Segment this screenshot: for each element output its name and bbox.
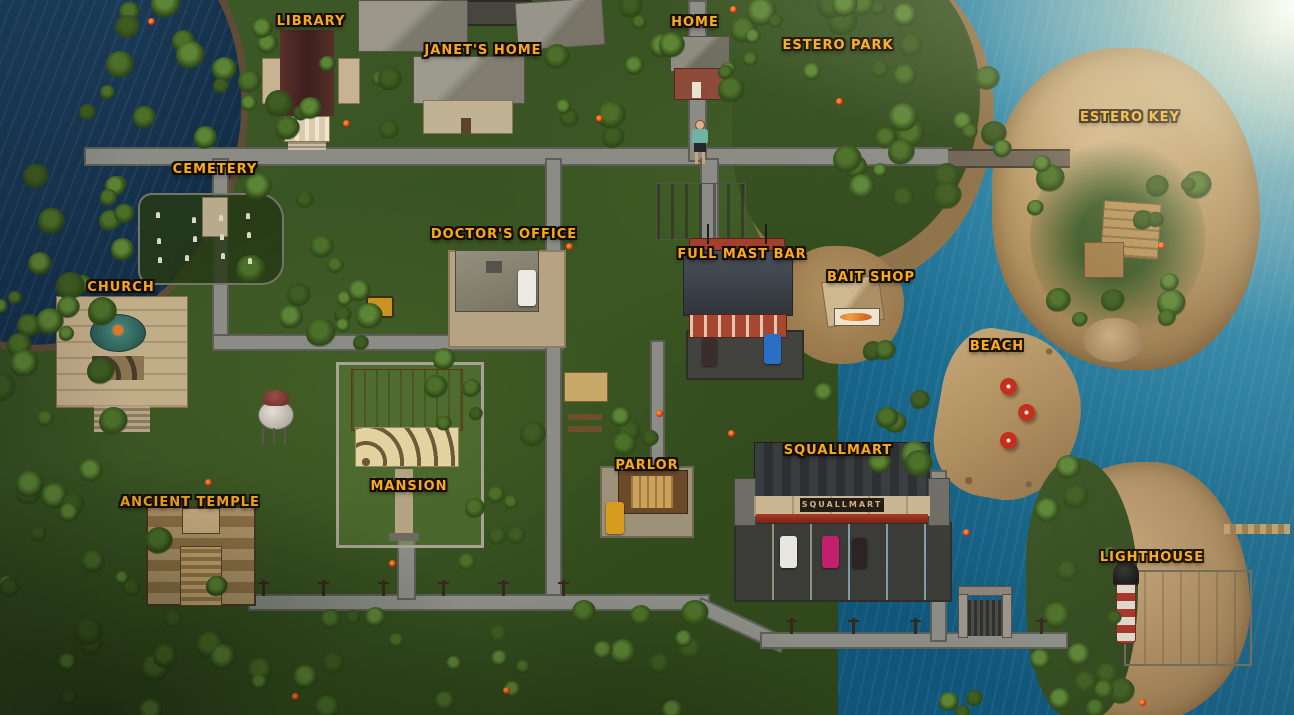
palm-tree [322,652,345,675]
squallmart-dark-car [852,538,867,568]
flower [343,120,350,127]
palm-tree [593,641,613,661]
palm-tree [0,373,16,403]
player-marker [686,120,714,168]
palm-tree [115,571,129,585]
flower [292,693,299,700]
beach-umbrella [1018,404,1035,421]
water-tower [254,388,298,446]
palm-tree [556,99,572,115]
palm-tree [279,305,304,330]
bar-mast-left [707,224,709,244]
palm-tree [617,420,641,444]
flower [389,560,396,567]
warehouse-building [656,183,746,240]
utility-pole [1040,618,1043,634]
player-shirt [692,129,708,144]
bar-mast-right [765,224,767,244]
parlor-yellow-van [606,502,624,534]
palm-tree [296,191,314,209]
utility-pole [502,580,505,596]
temple-stairs [180,546,222,606]
palm-tree [560,109,579,128]
water-tower-dome [263,390,289,406]
home-building[interactable] [670,36,730,102]
squallmart-storefront-sign: SQUALLMART [800,498,884,512]
palm-tree [310,235,334,259]
map-label-home[interactable]: HOME [671,16,719,29]
map-label-ancient-temple[interactable]: ANCIENT TEMPLE [120,496,260,509]
janets-home-building[interactable] [413,56,525,136]
bait-shop-fish-logo [840,313,872,321]
gravestone [248,258,252,264]
palm-tree [389,633,404,648]
palm-tree [80,633,103,656]
library-portico [284,116,330,142]
palm-tree [520,421,547,448]
palm-tree [58,653,77,672]
palm-tree [327,257,343,273]
gravestone [247,232,251,238]
palm-tree [251,674,268,691]
gate-iron-doors [968,600,1002,636]
palm-tree [210,644,236,670]
utility-pole [322,580,325,596]
palm-tree [435,691,454,710]
bait-shop-building[interactable] [824,278,886,348]
church-body [56,296,188,408]
squallmart-pink-car [822,536,839,568]
library-right-tower [338,58,360,104]
palm-tree [602,126,625,149]
church-building[interactable] [56,294,190,434]
map-label-parlor[interactable]: PARLOR [615,459,678,472]
library-steps [288,142,326,150]
market-stand [560,370,614,440]
gravestone [157,238,161,244]
palm-tree [287,283,311,307]
beach-umbrella [1000,378,1017,395]
palm-tree [610,639,636,665]
palm-tree [678,637,702,661]
water-tower-legs [262,428,290,444]
parlor-building[interactable] [618,470,688,514]
palm-tree [346,610,360,624]
palm-tree [504,495,519,510]
lighthouse-tower [1108,562,1144,654]
flower [205,479,212,486]
sandbar-islet [1083,318,1145,362]
parlor-roof-center [631,476,673,508]
beach-umbrella [1000,432,1017,449]
lighthouse-gate [958,586,1012,640]
island-map: SQUALLMART LIBRARYJANET'S HOMEHOMEESTER [0,0,1294,715]
gate-left-pillar [958,594,968,638]
lighthouse-column [1116,584,1136,644]
map-label-beach[interactable]: BEACH [970,340,1024,353]
palm-tree [662,700,683,715]
squallmart-white-car [780,536,797,568]
doctors-office-white-car [518,270,536,306]
palm-tree [10,350,39,379]
library-roof [280,30,334,116]
palm-tree [79,459,103,483]
mansion-grounds[interactable] [336,362,484,548]
palm-tree [15,478,43,506]
utility-pole [442,580,445,596]
palm-tree [516,660,530,674]
bar-blue-truck [764,334,781,364]
flower [1158,242,1165,249]
squallmart-left-wing [734,478,756,526]
palm-tree [141,654,169,682]
gravestone [193,236,197,242]
utility-pole [562,580,565,596]
gate-right-pillar [1002,594,1012,638]
palm-tree [632,15,647,30]
utility-pole [262,580,265,596]
mansion-roof [351,369,463,431]
palm-tree [625,56,645,76]
flower [148,18,155,25]
palm-tree [81,550,105,574]
utility-pole [914,618,917,634]
utility-pole [790,618,793,634]
map-label-estero-key[interactable]: ESTERO KEY [1080,111,1180,124]
player-left-leg [695,152,698,164]
palm-tree [378,67,402,91]
player-right-leg [702,152,705,164]
cemetery-chapel [202,197,228,237]
flower [566,243,573,250]
gravestone [192,217,196,223]
map-label-doctors-office[interactable]: DOCTOR'S OFFICE [431,228,577,241]
palm-tree [30,526,46,542]
palm-tree [336,318,351,333]
palm-tree [488,527,507,546]
home-roof [670,36,730,72]
market-bench-2 [568,426,602,432]
flower [836,98,843,105]
palm-tree [446,656,462,672]
gravestone [219,215,223,221]
map-label-library[interactable]: LIBRARY [277,15,346,28]
palm-tree [372,71,388,87]
janets-home-door [461,118,471,134]
squallmart-parking-lot [734,522,952,602]
palm-tree [491,650,508,667]
road-bottom-east-west [248,594,710,611]
palm-tree [675,630,693,648]
lighthouse-cap [1113,562,1139,586]
palm-tree [41,483,68,510]
palm-tree [321,609,341,629]
flower [656,410,663,417]
palm-tree [489,625,507,643]
mansion-facade [355,427,459,467]
palm-tree [814,383,834,403]
church-dome [90,314,146,352]
flower [730,6,737,13]
ancient-temple-structure[interactable] [146,506,256,606]
palm-tree [196,631,224,659]
palm-tree [122,579,140,597]
palm-tree [60,492,85,517]
map-label-squallmart[interactable]: SQUALLMART [784,444,893,457]
estero-key-bridge [948,149,1070,168]
squallmart-awning [756,514,928,523]
janets-home-roof [413,56,525,104]
utility-pole [382,580,385,596]
palm-tree [507,526,526,545]
doctors-office-ac-unit [486,261,502,273]
palm-tree [0,576,14,590]
gravestone [220,234,224,240]
mansion-building [351,369,463,469]
palm-tree [37,410,54,427]
gravestone [158,257,162,263]
map-label-bait-shop[interactable]: BAIT SHOP [827,271,915,284]
mansion-gate [389,533,419,541]
palm-tree [59,503,79,523]
palm-tree [649,653,671,675]
map-label-cemetery[interactable]: CEMETERY [173,163,258,176]
palm-tree [379,120,398,139]
utility-pole [852,618,855,634]
palm-tree [612,432,637,457]
palm-tree [60,688,78,706]
bulldozer [366,296,394,318]
road-lighthouse-east-west [760,632,1068,649]
map-label-church[interactable]: CHURCH [87,281,154,294]
palm-tree [74,618,103,647]
gravestone [246,213,250,219]
palm-tree [247,658,273,684]
home-door [692,82,701,98]
church-steps [94,406,150,432]
player-shorts [694,143,706,152]
flower [503,687,510,694]
squallmart-right-wing [928,478,950,526]
east-pier [1224,524,1290,534]
map-label-janets-home[interactable]: JANET'S HOME [424,44,541,57]
palm-tree [164,610,183,629]
market-stand-roof [564,372,608,402]
palm-tree [487,486,505,504]
palm-tree [315,695,340,715]
flower [963,529,970,536]
gravestone [156,212,160,218]
flower [596,115,603,122]
gravestone [221,253,225,259]
map-label-estero-park[interactable]: ESTERO PARK [782,39,893,52]
palm-tree [0,578,20,598]
gravestone [185,255,189,261]
map-label-lighthouse[interactable]: LIGHTHOUSE [1100,551,1204,564]
palm-tree [458,553,476,571]
palm-tree [139,699,163,715]
palm-tree [153,644,178,669]
market-bench-1 [568,414,602,420]
map-label-full-mast-bar[interactable]: FULL MAST BAR [677,248,806,261]
palm-tree [293,665,318,690]
temple-summit [182,508,220,534]
stilt-house-annex [1084,242,1124,278]
church-arches [92,356,144,380]
palm-tree [16,471,43,498]
palm-tree [619,0,643,19]
flower [728,430,735,437]
library-building[interactable] [256,26,374,138]
map-label-mansion[interactable]: MANSION [370,480,447,493]
palm-tree [334,306,352,324]
bar-dark-car [702,338,717,366]
palm-tree [337,291,353,307]
flower [1139,699,1146,706]
estero-key-stilt-house[interactable] [1080,180,1180,280]
